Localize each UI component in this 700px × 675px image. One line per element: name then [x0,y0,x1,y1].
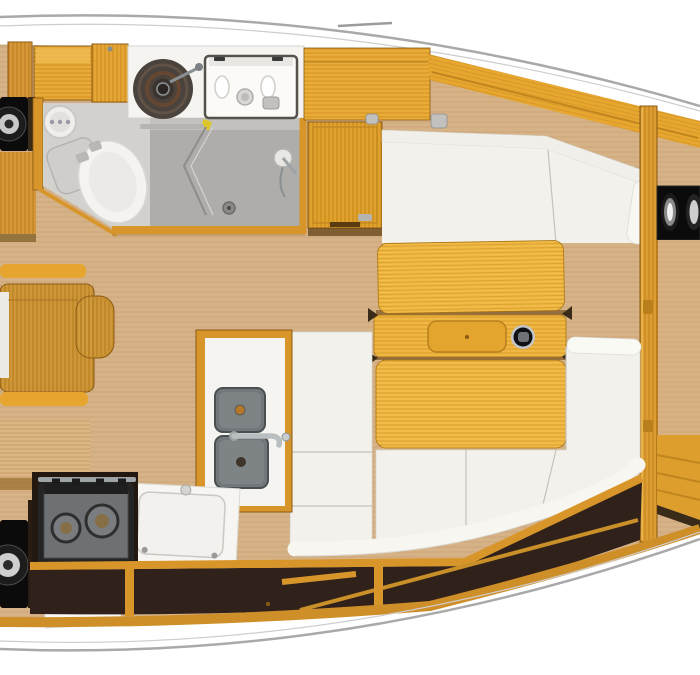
stove [38,477,136,566]
sink-unit-latch-right [272,57,283,61]
vberth-grain [657,240,700,435]
head-left-wall [33,98,43,190]
fwd-speaker2-cone-icon [690,200,699,224]
fridge-lid [136,492,225,558]
nav-chart-paper [0,292,9,378]
aft-berth-slab-grain [0,152,36,234]
table-leaf-bottom-grain [376,360,566,448]
wardrobe-vent [330,222,360,227]
fridge-counter [126,482,240,569]
table-tray-dot [465,335,469,339]
boat-floorplan [0,0,700,675]
sink-unit-latch-left [214,57,225,61]
tap-handle-left [215,76,229,98]
stowage-post-2 [374,562,383,610]
shower-floor [150,118,302,231]
shower-door-rail [140,124,204,129]
bulkhead-hinge-2 [643,420,653,432]
stove-burner-left-cap [60,522,72,534]
aft-cabin-berth-foot-grain [0,420,90,478]
sink-drain-lower [236,457,246,467]
washbasin-faucet-knob [195,63,203,71]
shower-drain-hole [227,206,231,210]
wardrobe-kick-shadow [308,228,382,236]
fwd-speaker-dome-icon [667,203,673,221]
compass-knob-slot [518,332,529,342]
settee-right-bolster [567,337,642,356]
floorplan-canvas [0,0,700,675]
speaker-dome-icon [5,120,14,129]
locker-hinge [108,47,113,52]
deck-toe-rail-mark [338,23,392,26]
sink-unit-drain [241,93,249,101]
washbasin-drain [157,83,169,95]
basin-dot-1 [50,120,54,124]
salon-table [368,240,572,448]
nav-desk-bump-grain [78,298,112,356]
stove-burner-right-cap [95,514,109,528]
locker-aft-small-grain [8,42,32,98]
stowage-screw [266,602,270,606]
wardrobe-clip-1 [366,114,378,124]
wardrobe-hinge [358,214,372,221]
locker-aft-tall-grain [92,44,128,102]
fridge-lid-knob [181,485,192,496]
nav-rail-upper [0,264,86,278]
head-corner-basin [44,106,76,138]
sink-drain-upper [235,405,245,415]
wardrobe-door-grain [308,122,382,228]
stowage-post-1 [125,568,134,616]
aft-port-lockers [8,42,128,102]
settee-port-bench [290,332,372,556]
aft-port-speaker-upper [0,97,35,151]
table-leaf-top-grain [377,240,564,313]
vanity-sink-unit [205,56,297,118]
basin-dot-2 [58,120,62,124]
wall-bracket [263,97,279,109]
wardrobe-counter-grain [304,48,430,120]
speaker-dome-icon [3,560,13,570]
faucet-tip [282,433,290,441]
locker-shelf-top [36,48,90,63]
tap-handle-right [261,76,275,98]
basin-dot-3 [66,120,70,124]
bulkhead-hinge-1 [643,300,653,314]
shelf-clip [431,114,447,128]
nav-rail-lower [0,392,88,406]
aft-berth-slab-shadow [0,234,36,242]
